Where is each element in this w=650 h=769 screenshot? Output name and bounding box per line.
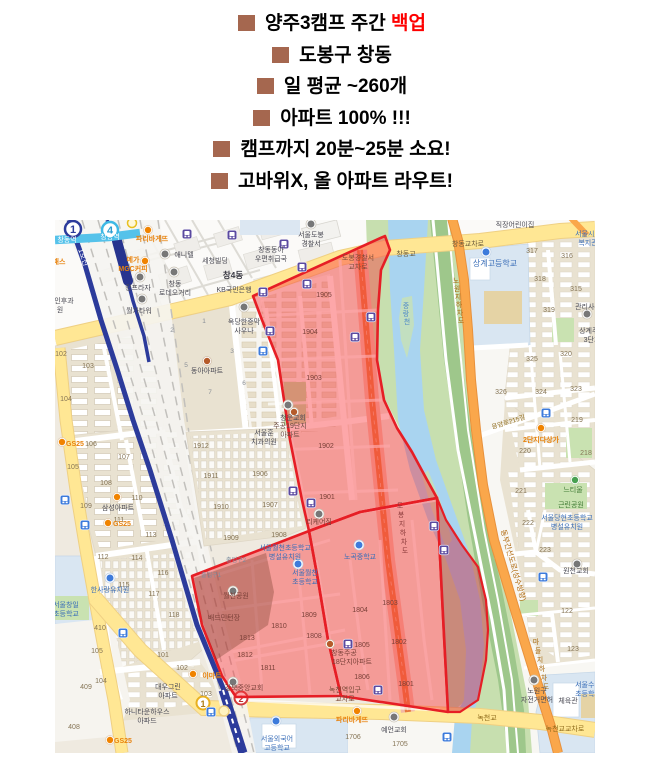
svg-text:자전거면허: 자전거면허	[521, 695, 553, 704]
svg-text:서울창일: 서울창일	[55, 600, 79, 609]
svg-text:116: 116	[157, 570, 168, 577]
svg-text:하: 하	[400, 528, 407, 537]
svg-text:아파드: 아파드	[137, 716, 157, 725]
svg-text:222: 222	[522, 520, 534, 527]
svg-text:219: 219	[571, 417, 583, 424]
svg-text:예언교회: 예언교회	[381, 725, 407, 734]
svg-text:GS25: GS25	[113, 521, 131, 528]
svg-text:파리바게뜨: 파리바게뜨	[136, 234, 169, 243]
svg-text:랑: 랑	[403, 310, 410, 318]
svg-text:킹프라자: 킹프라자	[125, 283, 151, 292]
svg-text:220: 220	[519, 448, 531, 455]
svg-text:고등학교: 고등학교	[264, 743, 290, 752]
svg-text:마: 마	[533, 637, 540, 646]
svg-text:1912: 1912	[193, 443, 209, 450]
svg-text:치과의원: 치과의원	[251, 437, 277, 446]
svg-text:서울월천: 서울월천	[292, 568, 318, 577]
svg-text:녹천역입구: 녹천역입구	[329, 685, 362, 694]
svg-text:교차로: 교차로	[348, 262, 368, 271]
svg-text:로데오거리: 로데오거리	[159, 288, 191, 297]
svg-text:서울수락: 서울수락	[575, 680, 595, 689]
svg-text:1907: 1907	[262, 502, 278, 509]
svg-text:MGC커피: MGC커피	[118, 264, 147, 273]
svg-text:323: 323	[570, 386, 582, 393]
svg-text:112: 112	[97, 554, 108, 561]
svg-text:리케어짐: 리케어짐	[306, 517, 332, 526]
svg-text:원천교회: 원천교회	[563, 566, 589, 575]
svg-text:도봉경찰서: 도봉경찰서	[342, 253, 374, 262]
svg-text:324: 324	[535, 389, 547, 396]
svg-text:123: 123	[567, 646, 579, 653]
svg-text:청운교회: 청운교회	[280, 414, 306, 422]
svg-text:출입구1: 출입구1	[201, 571, 222, 579]
svg-text:1910: 1910	[213, 504, 229, 511]
svg-text:병설유치원: 병설유치원	[551, 522, 583, 531]
svg-text:1: 1	[70, 224, 76, 236]
svg-text:1901: 1901	[319, 494, 335, 501]
svg-text:GS25: GS25	[66, 441, 84, 448]
svg-text:아파트: 아파트	[280, 430, 300, 439]
svg-text:218: 218	[580, 450, 592, 457]
svg-text:도: 도	[458, 317, 464, 325]
svg-text:녹천교: 녹천교	[477, 713, 497, 722]
svg-text:도: 도	[397, 502, 403, 510]
svg-text:GS25: GS25	[114, 738, 132, 745]
svg-text:초등학교: 초등학교	[55, 609, 79, 618]
svg-text:도: 도	[543, 683, 549, 691]
svg-text:하니타운하우스: 하니타운하우스	[124, 707, 170, 716]
svg-text:105: 105	[91, 648, 103, 655]
svg-text:차: 차	[401, 537, 408, 546]
svg-text:관리사무: 관리사무	[575, 302, 595, 311]
svg-text:1903: 1903	[306, 375, 322, 382]
svg-text:주공19단지: 주공19단지	[273, 421, 307, 430]
svg-text:1904: 1904	[302, 329, 318, 336]
svg-text:319: 319	[543, 307, 555, 314]
svg-text:1801: 1801	[398, 681, 414, 688]
svg-text:1906: 1906	[252, 471, 268, 478]
svg-text:애니텔: 애니텔	[174, 250, 193, 259]
svg-text:1810: 1810	[271, 623, 287, 630]
svg-text:106: 106	[85, 441, 97, 448]
svg-text:원: 원	[57, 305, 63, 314]
svg-text:교차로: 교차로	[335, 694, 355, 703]
svg-text:창동: 창동	[169, 280, 182, 288]
svg-text:서울훈: 서울훈	[254, 428, 274, 437]
svg-text:408: 408	[68, 724, 80, 731]
svg-text:1902: 1902	[318, 443, 334, 450]
svg-text:316: 316	[561, 253, 573, 260]
svg-text:101: 101	[157, 652, 169, 659]
svg-text:1809: 1809	[301, 612, 317, 619]
svg-text:409: 409	[80, 684, 92, 691]
svg-text:한사랑유치원: 한사랑유치원	[91, 585, 130, 594]
svg-text:창동역: 창동역	[100, 232, 119, 241]
svg-text:강북중앙교회: 강북중앙교회	[225, 683, 264, 692]
svg-text:중: 중	[403, 302, 409, 310]
svg-text:우편취급국: 우편취급국	[255, 254, 288, 263]
svg-text:상계고등학교: 상계고등학교	[473, 258, 517, 268]
svg-text:원: 원	[454, 284, 460, 293]
svg-text:107: 107	[118, 454, 130, 461]
svg-text:하: 하	[456, 300, 463, 309]
svg-text:221: 221	[515, 488, 527, 495]
svg-text:서울당현초등학교: 서울당현초등학교	[541, 513, 593, 522]
svg-text:파리바게뜨: 파리바게뜨	[336, 715, 369, 724]
svg-text:1908: 1908	[271, 532, 287, 539]
svg-text:1705: 1705	[392, 741, 408, 748]
svg-text:2단지다상가: 2단지다상가	[523, 435, 560, 444]
svg-text:1802: 1802	[391, 639, 407, 646]
svg-text:인후과: 인후과	[55, 296, 74, 305]
svg-text:1808: 1808	[306, 633, 322, 640]
svg-text:도: 도	[402, 547, 408, 555]
svg-text:7: 7	[208, 389, 212, 396]
svg-text:1806: 1806	[354, 674, 370, 681]
svg-text:창동주공: 창동주공	[331, 649, 357, 657]
svg-text:창동교차로: 창동교차로	[452, 239, 485, 248]
svg-text:상계주공: 상계주공	[579, 326, 595, 335]
svg-text:1803: 1803	[382, 600, 398, 607]
svg-text:6: 6	[242, 380, 246, 387]
svg-text:104: 104	[60, 396, 72, 403]
svg-text:3단지: 3단지	[584, 335, 595, 344]
svg-text:109: 109	[80, 503, 92, 510]
svg-text:1804: 1804	[352, 607, 368, 614]
svg-text:3: 3	[230, 348, 234, 355]
svg-text:1706: 1706	[345, 734, 361, 741]
svg-text:2: 2	[170, 327, 174, 334]
svg-text:108: 108	[100, 480, 112, 487]
svg-text:대우그린: 대우그린	[155, 682, 181, 691]
svg-text:차: 차	[457, 308, 464, 317]
svg-text:초등학교: 초등학교	[292, 577, 318, 586]
svg-text:지: 지	[399, 519, 405, 528]
svg-text:325: 325	[526, 356, 538, 363]
svg-text:113: 113	[145, 532, 156, 539]
svg-text:창동교: 창동교	[396, 250, 416, 258]
svg-text:320: 320	[560, 351, 572, 358]
svg-text:118: 118	[168, 612, 179, 619]
svg-text:103: 103	[82, 363, 94, 370]
svg-text:1813: 1813	[239, 635, 255, 642]
svg-text:천: 천	[404, 317, 410, 326]
svg-text:5: 5	[184, 362, 188, 369]
svg-text:102: 102	[55, 351, 67, 358]
svg-text:세청빌딩: 세청빌딩	[202, 256, 228, 265]
svg-text:복지관: 복지관	[578, 238, 595, 247]
svg-text:1911: 1911	[203, 473, 218, 480]
svg-text:봉: 봉	[398, 511, 404, 519]
svg-text:노곡중학교: 노곡중학교	[344, 552, 377, 561]
svg-text:114: 114	[131, 555, 142, 562]
svg-text:창동동아: 창동동아	[258, 245, 284, 254]
svg-text:삼성아파트: 삼성아파트	[102, 503, 135, 512]
svg-text:월천공원: 월천공원	[223, 591, 249, 600]
svg-text:1805: 1805	[354, 642, 370, 649]
svg-text:느티울: 느티울	[563, 485, 583, 494]
svg-text:차: 차	[541, 673, 548, 682]
svg-text:출입구2: 출입구2	[226, 556, 247, 564]
svg-text:102: 102	[176, 665, 188, 672]
svg-text:103: 103	[200, 691, 212, 698]
svg-text:326: 326	[495, 389, 507, 396]
svg-text:105: 105	[67, 464, 79, 471]
svg-text:318: 318	[534, 276, 546, 283]
svg-text:녹천교교차로: 녹천교교차로	[546, 724, 585, 733]
svg-text:서울도봉: 서울도봉	[298, 230, 324, 239]
svg-text:1811: 1811	[260, 665, 275, 672]
svg-text:1812: 1812	[237, 652, 253, 659]
svg-text:117: 117	[148, 591, 159, 598]
svg-text:근린공원: 근린공원	[558, 500, 584, 509]
svg-text:223: 223	[539, 547, 551, 554]
svg-text:사우나: 사우나	[234, 326, 254, 335]
svg-text:메가: 메가	[127, 255, 140, 264]
svg-text:서울시범: 서울시범	[575, 229, 595, 238]
svg-text:410: 410	[94, 625, 106, 632]
svg-text:하: 하	[539, 664, 546, 673]
svg-text:배드민턴장: 배드민턴장	[208, 613, 241, 622]
svg-text:18단지아파트: 18단지아파트	[332, 657, 373, 666]
svg-text:서울월천초등학교: 서울월천초등학교	[259, 543, 311, 552]
svg-text:병설유치원: 병설유치원	[269, 552, 301, 561]
svg-text:1: 1	[202, 318, 206, 325]
svg-text:동아아파트: 동아아파트	[191, 366, 224, 375]
svg-text:지: 지	[537, 655, 543, 664]
svg-text:직장어린이집: 직장어린이집	[496, 220, 535, 229]
svg-text:아파트: 아파트	[158, 691, 178, 700]
svg-text:경찰서: 경찰서	[301, 239, 320, 248]
svg-text:이마트: 이마트	[202, 671, 222, 680]
svg-text:317: 317	[526, 248, 538, 255]
svg-text:노: 노	[453, 277, 459, 285]
svg-text:들: 들	[535, 647, 541, 655]
svg-text:지: 지	[455, 292, 461, 301]
svg-text:315: 315	[570, 286, 582, 293]
svg-text:110: 110	[131, 495, 142, 502]
svg-text:서울외국어: 서울외국어	[261, 734, 293, 743]
svg-text:창4동: 창4동	[223, 270, 244, 280]
svg-text:1909: 1909	[223, 535, 239, 542]
svg-text:초등학교: 초등학교	[575, 689, 595, 698]
svg-text:패스: 패스	[55, 257, 66, 266]
svg-text:옥당한증막: 옥당한증막	[228, 317, 261, 326]
svg-text:104: 104	[95, 678, 107, 685]
svg-text:122: 122	[561, 608, 573, 615]
svg-text:창동역: 창동역	[57, 235, 76, 244]
svg-text:KB국민은행: KB국민은행	[216, 285, 251, 294]
svg-text:월가타워: 월가타워	[126, 306, 152, 315]
svg-text:1: 1	[200, 699, 205, 709]
svg-text:1905: 1905	[316, 292, 332, 299]
